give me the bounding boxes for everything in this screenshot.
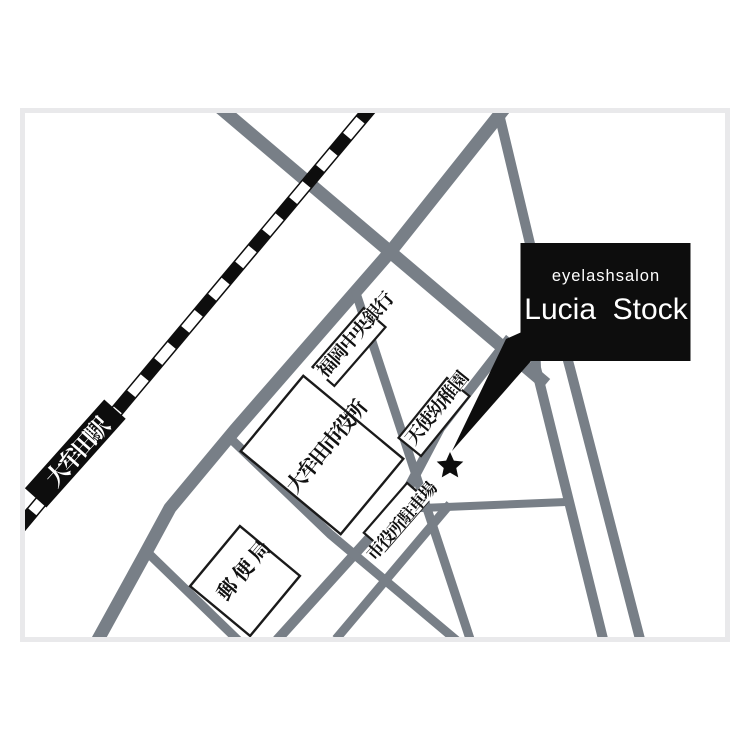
svg-text:Lucia Stock: Lucia Stock xyxy=(524,293,688,326)
svg-text:eyelashsalon: eyelashsalon xyxy=(552,267,660,285)
